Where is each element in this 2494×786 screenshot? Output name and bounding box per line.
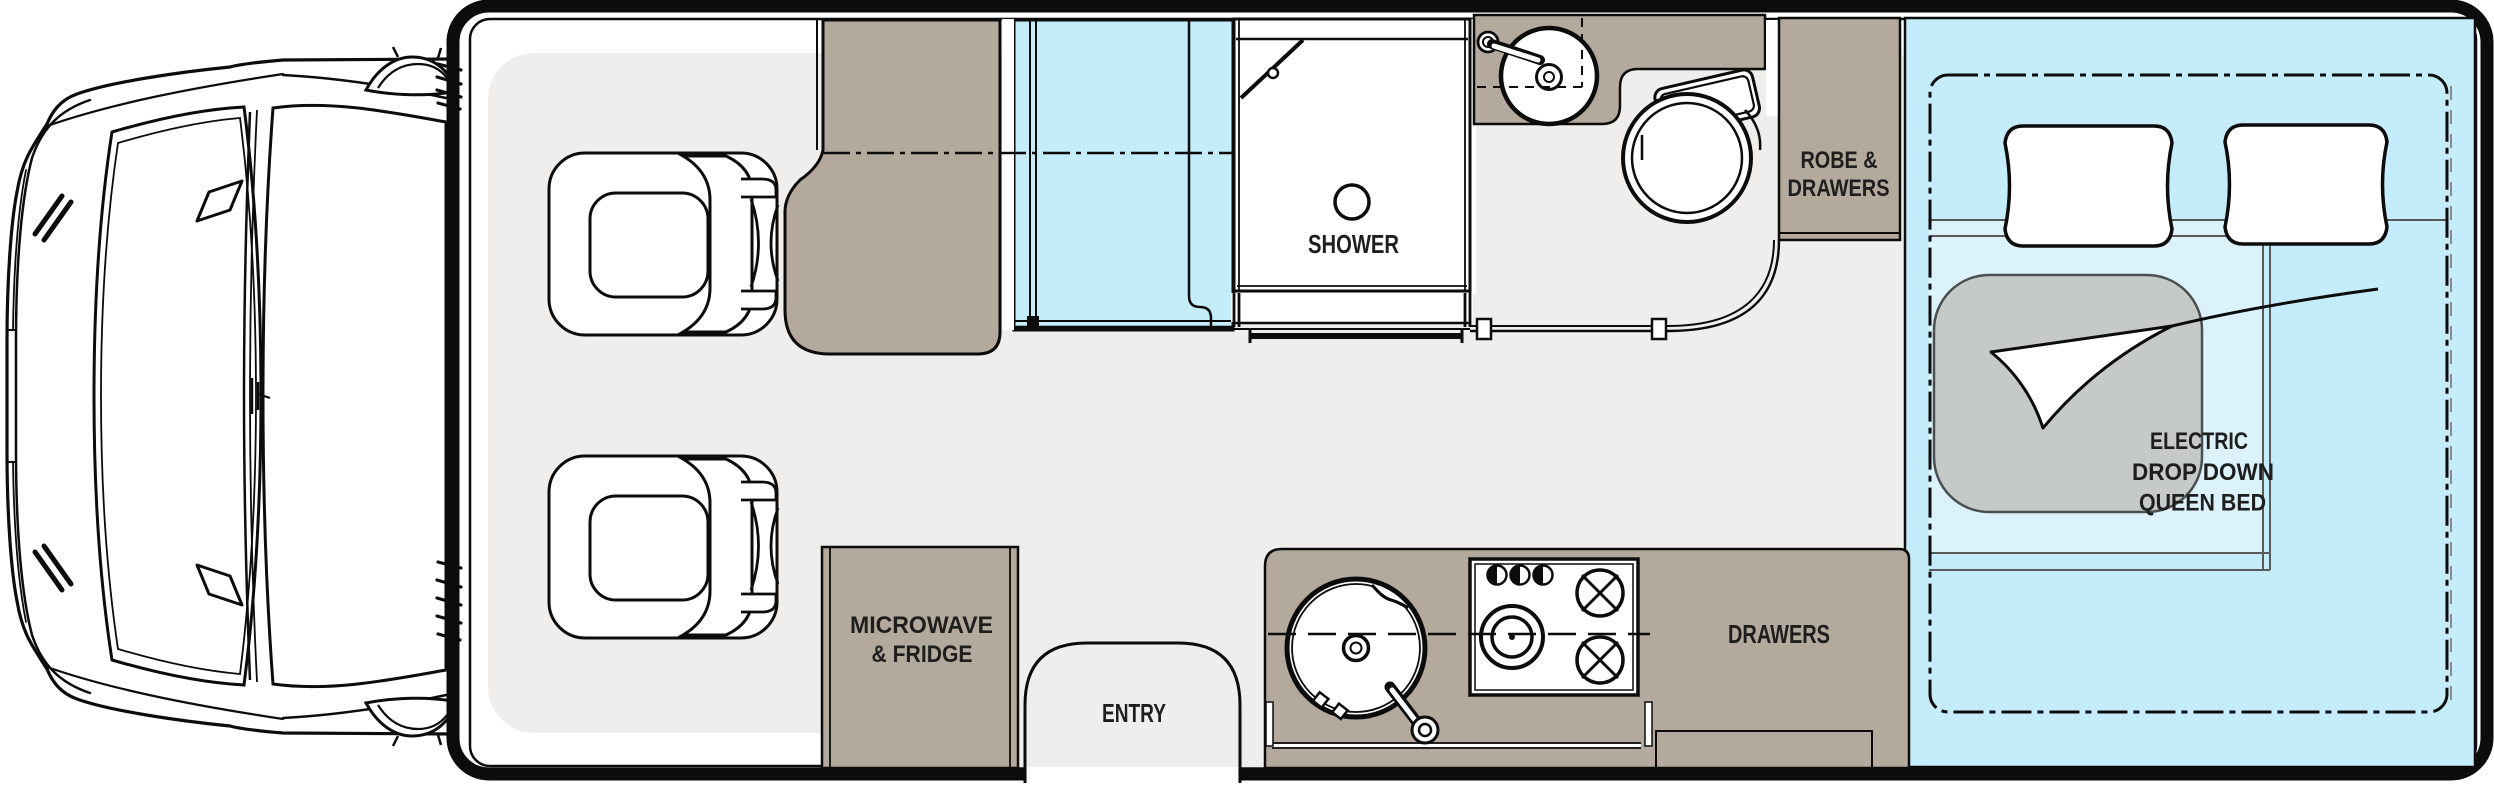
svg-text:& FRIDGE: & FRIDGE [872, 641, 973, 668]
svg-text:QUEEN BED: QUEEN BED [2139, 490, 2266, 517]
svg-text:SHOWER: SHOWER [1308, 231, 1399, 259]
svg-text:ENTRY: ENTRY [1102, 698, 1166, 728]
svg-text:DRAWERS: DRAWERS [1788, 175, 1890, 202]
svg-text:DRAWERS: DRAWERS [1728, 621, 1830, 649]
svg-text:MICROWAVE: MICROWAVE [850, 612, 993, 639]
svg-text:ELECTRIC: ELECTRIC [2150, 428, 2248, 455]
svg-text:DROP DOWN: DROP DOWN [2132, 459, 2274, 486]
svg-text:ROBE &: ROBE & [1801, 147, 1878, 174]
